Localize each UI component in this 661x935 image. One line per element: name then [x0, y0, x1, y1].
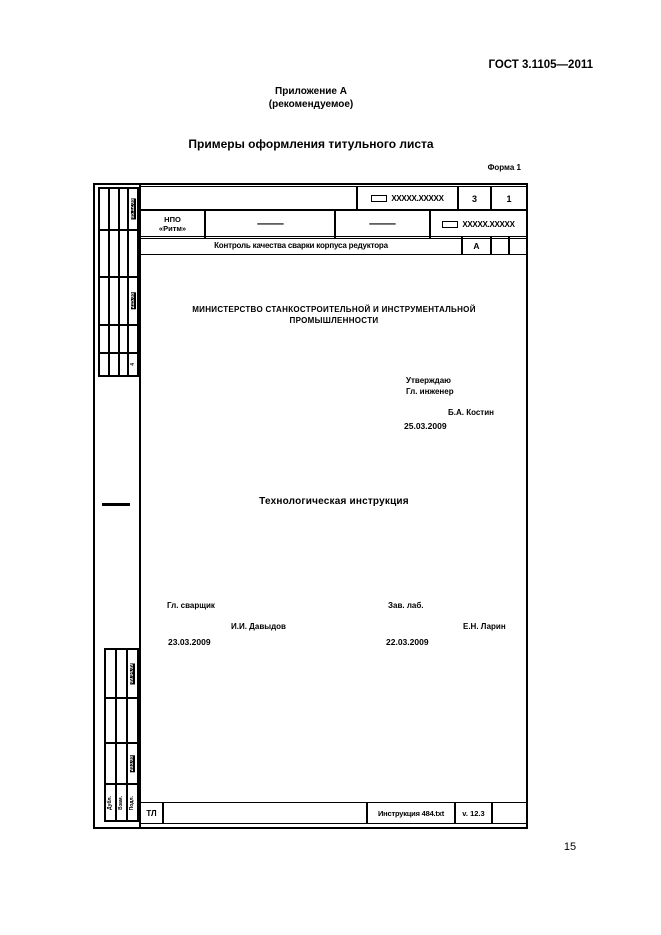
doc-designation-top-cell: XXXXX.XXXXX: [356, 186, 459, 211]
dash-mark: —: [257, 218, 283, 230]
margin-stamp-small: 4: [131, 363, 136, 366]
left-margin-strip-bottom: 09.04.09 203.08 Дубл. Взам. Подл.: [104, 648, 139, 822]
sign-left-date: 23.03.2009: [168, 637, 211, 647]
margin-label-podl: Подл.: [130, 796, 135, 810]
margin-stamp-lower2: 203.08: [130, 755, 135, 772]
grid-cell: 203.08: [127, 743, 138, 785]
organization-cell: НПО «Ритм»: [139, 209, 206, 239]
footer-cell-empty: [162, 802, 368, 824]
grid-cell: [99, 230, 109, 277]
approve-role: Гл. инженер: [406, 387, 454, 398]
total-sheets-cell: 3: [457, 186, 492, 211]
appendix-subtitle: (рекомендуемое): [161, 98, 461, 111]
standard-number: ГОСТ 3.1105—2011: [350, 59, 593, 71]
signature-dash-cell-2: —: [334, 209, 431, 239]
version-cell: v. 12.3: [454, 802, 493, 824]
sign-left-role: Гл. сварщик: [167, 601, 215, 610]
sign-right-role: Зав. лаб.: [388, 601, 424, 610]
grid-cell: [109, 230, 119, 277]
grid-cell: [105, 698, 116, 742]
grid-cell: [109, 325, 119, 353]
grid-cell: [119, 230, 129, 277]
doc-designation-right-cell: XXXXX.XXXXX: [429, 209, 528, 239]
approve-date: 25.03.2009: [404, 421, 447, 431]
appendix-heading: Приложение А (рекомендуемое): [161, 85, 461, 111]
margin-stamp-lower1: 09.04.09: [130, 663, 135, 684]
margin-stamp-middle: 215.08: [131, 292, 136, 309]
grid-cell: [99, 325, 109, 353]
organization-line1: НПО: [164, 215, 181, 224]
approval-block: Утверждаю Гл. инженер: [406, 376, 454, 397]
grid-cell: [116, 743, 127, 785]
margin-stamp-top: 05.12.08: [131, 198, 136, 219]
grid-cell: [105, 649, 116, 698]
grid-cell: [109, 188, 119, 230]
grid-cell: Дубл.: [105, 784, 116, 821]
sign-right-date: 22.03.2009: [386, 637, 429, 647]
grid-cell: 215.08: [128, 277, 138, 325]
page-number: 15: [555, 841, 585, 853]
grid-cell: [128, 325, 138, 353]
grid-cell: Подл.: [127, 784, 138, 821]
form-label: Форма 1: [380, 163, 521, 172]
centre-fold-mark: [102, 503, 130, 506]
sign-left-name: И.И. Давыдов: [231, 622, 286, 631]
document-page: ГОСТ 3.1105—2011 Приложение А (рекоменду…: [0, 0, 661, 935]
header-cell-empty: [508, 236, 528, 255]
approve-name: Б.А. Костин: [448, 408, 494, 417]
grid-cell: [128, 230, 138, 277]
appendix-title: Приложение А: [161, 85, 461, 98]
grid-cell: 09.04.09: [127, 649, 138, 698]
grid-cell: [99, 188, 109, 230]
doc-kind-cell: ТЛ: [139, 802, 164, 824]
sign-right-name: Е.Н. Ларин: [463, 622, 506, 631]
litera-cell: А: [461, 236, 492, 255]
grid-cell: [99, 277, 109, 325]
file-name-cell: Инструкция 484.txt: [366, 802, 456, 824]
doc-title-cell: Контроль качества сварки корпуса редукто…: [139, 236, 463, 255]
left-margin-strip-top: 05.12.08 215.08 4: [98, 187, 139, 377]
grid-cell: [116, 698, 127, 742]
grid-cell: [105, 743, 116, 785]
doc-code-box-icon: [442, 221, 458, 228]
header-cell-empty: [139, 186, 358, 211]
grid-cell: [119, 277, 129, 325]
ministry-line2: ПРОМЫШЛЕННОСТИ: [140, 315, 528, 326]
doc-code-box-icon: [371, 195, 387, 202]
grid-cell: 05.12.08: [128, 188, 138, 230]
doc-type-title: Технологическая инструкция: [140, 496, 528, 507]
grid-cell: [119, 325, 129, 353]
grid-cell: 4: [128, 353, 138, 376]
grid-cell: [127, 698, 138, 742]
approve-label: Утверждаю: [406, 376, 454, 387]
footer-cell-empty: [491, 802, 528, 824]
doc-designation-top: XXXXX.XXXXX: [391, 194, 443, 203]
section-title: Примеры оформления титульного листа: [111, 137, 511, 151]
ministry-heading: МИНИСТЕРСТВО СТАНКОСТРОИТЕЛЬНОЙ И ИНСТРУ…: [140, 304, 528, 326]
grid-cell: Взам.: [116, 784, 127, 821]
header-cell-empty: [490, 236, 510, 255]
grid-cell: [116, 649, 127, 698]
sheet-number-cell: 1: [490, 186, 528, 211]
grid-cell: [119, 353, 129, 376]
dash-mark: —: [369, 218, 395, 230]
grid-cell: [119, 188, 129, 230]
margin-label-vzam: Взам.: [119, 796, 124, 810]
grid-cell: [99, 353, 109, 376]
organization-line2: «Ритм»: [159, 224, 186, 233]
margin-label-dubl: Дубл.: [108, 796, 113, 810]
grid-cell: [109, 353, 119, 376]
signature-dash-cell-1: —: [204, 209, 336, 239]
ministry-line1: МИНИСТЕРСТВО СТАНКОСТРОИТЕЛЬНОЙ И ИНСТРУ…: [140, 304, 528, 315]
grid-cell: [109, 277, 119, 325]
doc-designation-right: XXXXX.XXXXX: [462, 220, 514, 229]
